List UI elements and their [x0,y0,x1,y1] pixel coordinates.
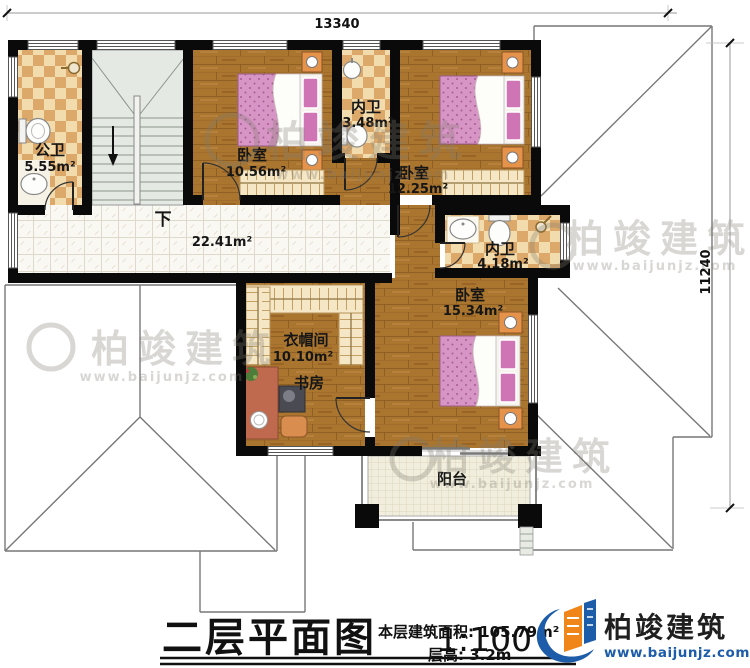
sink-icon [447,216,479,243]
pillow [303,78,318,108]
floor-corridor [395,205,440,283]
balcony-post [355,504,379,528]
svg-text:www.baijunjz.com: www.baijunjz.com [430,477,595,492]
logo-website-text: www.baijunjz.com [604,645,750,661]
svg-text:柏竣建筑: 柏竣建筑 [431,435,619,479]
dimension-right: 11240 [699,39,744,512]
area-note: 本层建筑面积: 105.79m² [378,623,559,641]
window [423,41,500,50]
window [28,41,78,50]
floor-plan-page: 公卫 5.55m² 卧室 10.56m² 内卫 3.48m² 卧室 12.25m… [0,0,750,668]
label-stairs-down: 下 [155,210,172,230]
chair-icon [281,416,307,437]
label-public-bath: 公卫 [35,141,65,159]
pillow [500,373,516,402]
dimension-width-label: 13340 [314,17,359,32]
dimension-top: 13340 [3,5,677,32]
label-bedroom2-area: 12.25m² [388,182,448,197]
label-bedroom3: 卧室 [455,286,485,304]
floor-height-note: 层高: 3.2m [428,646,511,664]
balcony-post [518,504,542,528]
window [213,41,287,50]
window [97,41,175,50]
stair-handrail [134,96,140,204]
label-study: 书房 [294,374,324,392]
wardrobe-icon [442,170,524,196]
label-hallway-area: 22.41m² [192,235,252,250]
window [9,57,18,97]
label-cloakroom-area: 10.10m² [273,350,333,365]
toilet-icon [19,119,50,144]
label-bath2-area: 4.18m² [477,257,528,272]
svg-text:柏竣建筑: 柏竣建筑 [566,217,750,261]
pillow [506,80,521,108]
window [268,447,333,456]
desk-icon [244,367,278,439]
sink-icon [21,174,47,195]
label-public-bath-area: 5.55m² [24,160,75,175]
lower-window [520,527,533,555]
label-bath2: 内卫 [485,240,515,258]
pillow [500,340,516,369]
label-bedroom3-area: 15.34m² [443,304,503,319]
brand-logo: 柏竣建筑 www.baijunjz.com [537,599,750,663]
pillow [506,112,521,140]
label-bath1: 内卫 [351,98,381,116]
window [529,315,538,403]
svg-text:www.baijunjz.com: www.baijunjz.com [276,167,451,183]
window [532,77,541,147]
watermark: 柏竣建筑 www.baijunjz.com [29,325,279,385]
window [9,213,18,268]
title-block: 二层平面图 1:100 本层建筑面积: 105.79m² 层高: 3.2m [160,615,576,664]
cup-icon [251,412,268,429]
svg-text:柏竣建筑: 柏竣建筑 [266,117,470,166]
dimension-height-label: 11240 [699,249,714,294]
svg-text:柏竣建筑: 柏竣建筑 [91,327,279,371]
floor-plan-canvas: 公卫 5.55m² 卧室 10.56m² 内卫 3.48m² 卧室 12.25m… [0,0,750,668]
window [343,41,380,50]
svg-text:www.baijunjz.com: www.baijunjz.com [80,370,245,385]
label-cloakroom: 衣帽间 [283,331,328,349]
bed-icon [440,336,520,406]
page-title: 二层平面图 [162,615,377,661]
logo-brand-text: 柏竣建筑 [604,611,728,644]
